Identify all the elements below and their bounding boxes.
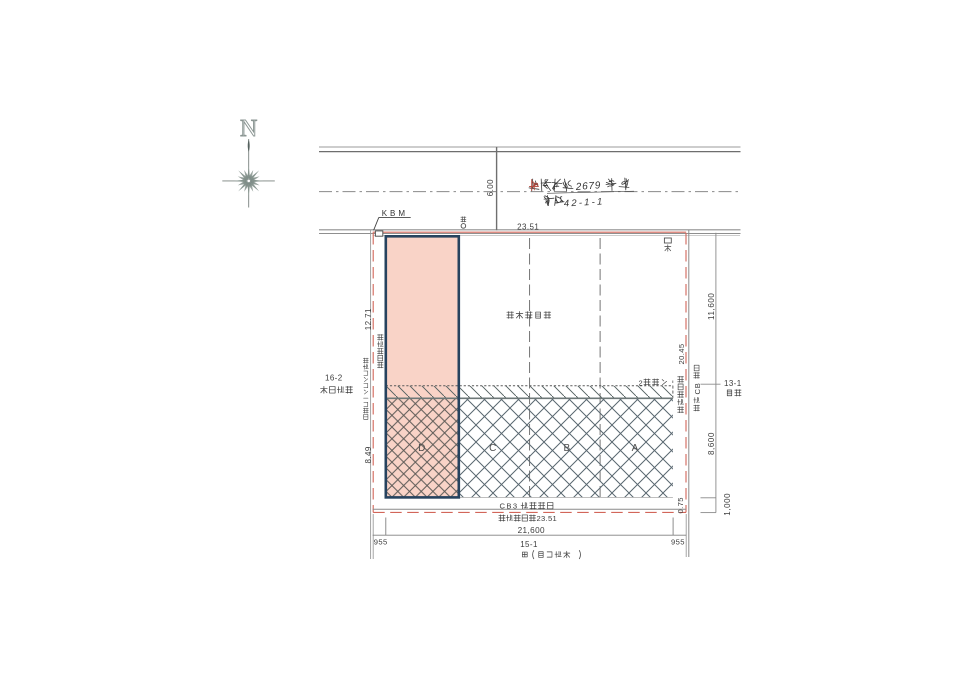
svg-text:A: A (632, 443, 639, 454)
svg-text:955: 955 (671, 537, 685, 546)
svg-text:2679: 2679 (574, 180, 601, 193)
svg-text:16-2: 16-2 (325, 374, 343, 383)
svg-text:N: N (240, 116, 257, 142)
svg-text:13-1: 13-1 (724, 379, 742, 388)
svg-text:21,600: 21,600 (518, 526, 545, 535)
svg-text:1,000: 1,000 (723, 493, 732, 516)
svg-text:8,600: 8,600 (707, 432, 716, 455)
svg-text:C: C (489, 443, 496, 454)
svg-text:955: 955 (374, 537, 388, 546)
svg-text:8.49: 8.49 (364, 446, 373, 463)
svg-text:12.71: 12.71 (364, 308, 373, 330)
svg-text:42-1-1: 42-1-1 (564, 196, 605, 209)
svg-text:20.45: 20.45 (677, 343, 686, 364)
svg-text:11,600: 11,600 (707, 293, 716, 320)
svg-text:23.51: 23.51 (537, 514, 558, 523)
svg-text:B: B (563, 443, 570, 454)
svg-text:CB: CB (693, 382, 702, 394)
svg-text:0.75: 0.75 (676, 497, 685, 513)
svg-text:D: D (418, 443, 425, 454)
svg-text:CB3: CB3 (500, 501, 519, 510)
svg-text:23.51: 23.51 (517, 223, 539, 232)
svg-text:KBM: KBM (382, 209, 408, 218)
svg-text:2: 2 (639, 379, 644, 388)
svg-text:6.00: 6.00 (486, 179, 495, 196)
svg-text:15-1: 15-1 (520, 540, 538, 549)
